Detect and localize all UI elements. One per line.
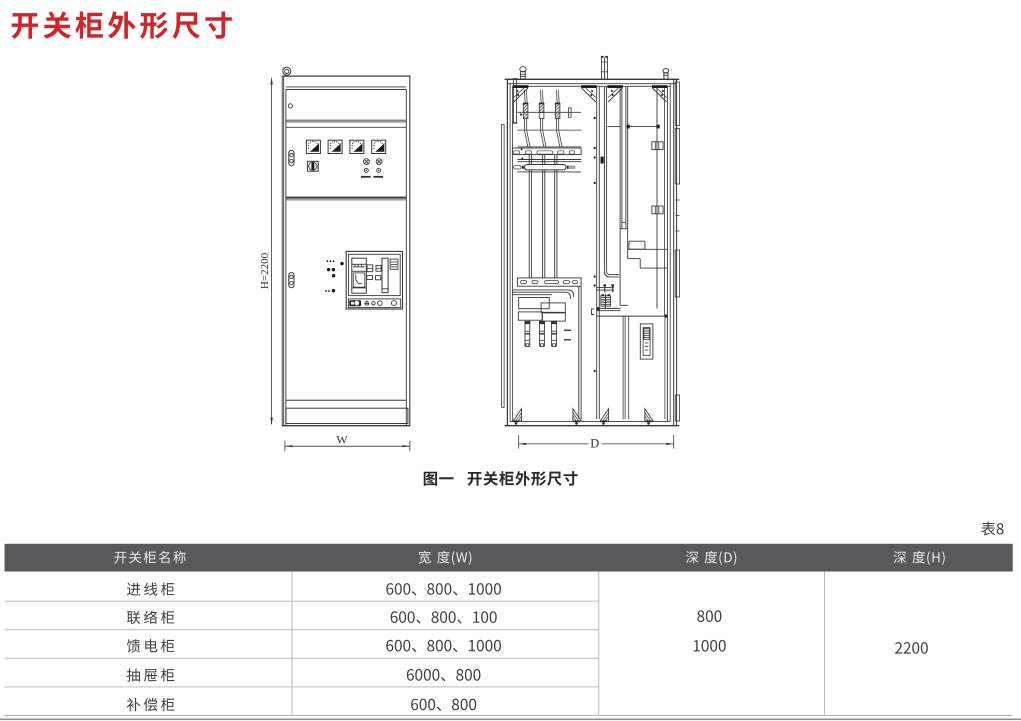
svg-text:D: D bbox=[590, 436, 599, 450]
svg-text:W: W bbox=[336, 433, 348, 447]
svg-text:H=2200: H=2200 bbox=[259, 252, 271, 289]
